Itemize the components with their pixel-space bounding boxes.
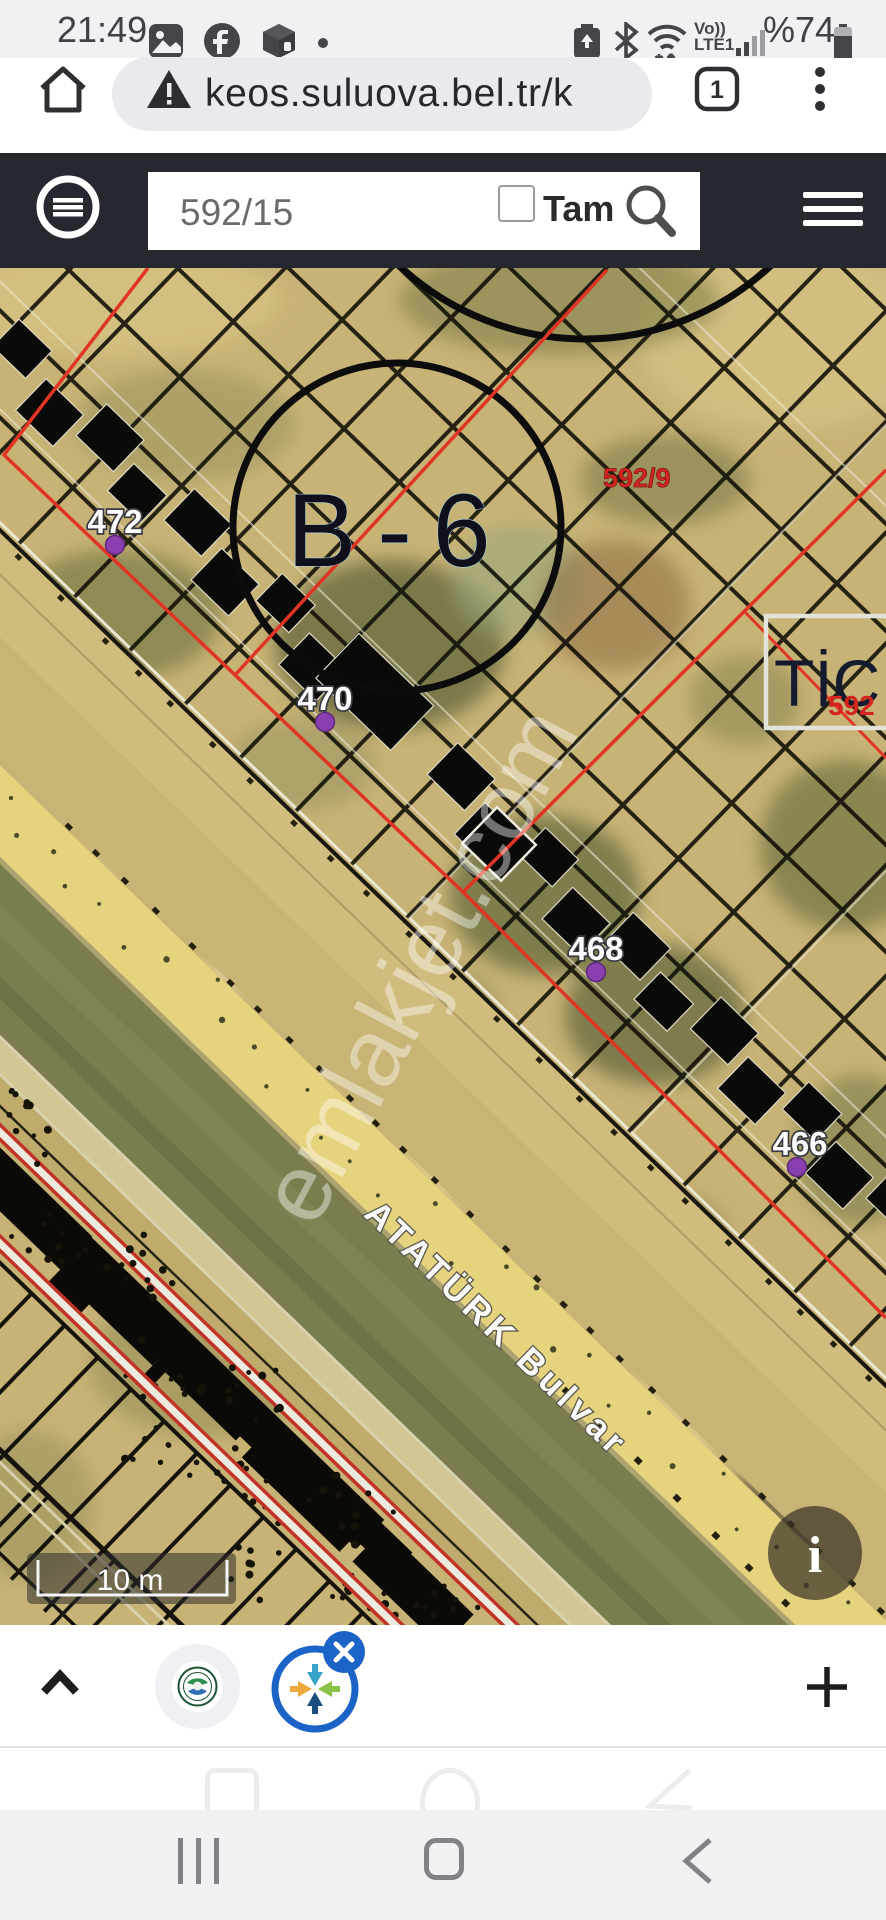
svg-text:1: 1 bbox=[710, 76, 724, 104]
svg-text:472: 472 bbox=[87, 503, 142, 540]
svg-text:466: 466 bbox=[772, 1125, 827, 1162]
svg-text:592/9: 592/9 bbox=[603, 463, 671, 493]
svg-text:592: 592 bbox=[828, 690, 875, 721]
svg-text:470: 470 bbox=[297, 680, 352, 717]
svg-text:468: 468 bbox=[568, 930, 623, 967]
svg-text:10 m: 10 m bbox=[97, 1564, 164, 1597]
svg-text:i: i bbox=[808, 1527, 822, 1584]
svg-text:B - 6: B - 6 bbox=[287, 473, 487, 589]
